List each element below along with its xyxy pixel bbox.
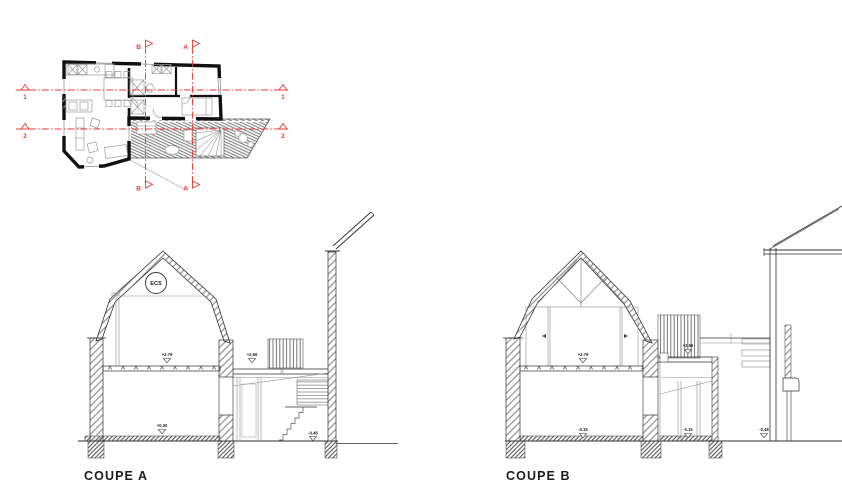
deck-stair	[196, 128, 224, 156]
door-arrow-icon	[624, 334, 628, 338]
coupe-a-party-wall	[328, 252, 336, 441]
coupe-a-title: COUPE A	[84, 469, 148, 483]
coupe-a-level-street: -0.48	[308, 431, 318, 441]
level-marker-icon	[164, 359, 171, 363]
level-text: -0.48	[759, 427, 769, 432]
level-text: +0.00	[157, 423, 168, 428]
coupe-a-left-wall	[90, 338, 103, 441]
section-1-right-flag-icon	[279, 85, 287, 91]
coupe-b-truss	[526, 258, 638, 307]
section-2-right-label: 2	[281, 133, 285, 140]
coupe-b-title: COUPE B	[506, 469, 571, 483]
coupe-b-annex	[658, 315, 718, 441]
section-a-bottom-flag-icon	[193, 181, 200, 188]
coupe-a-railing	[268, 339, 303, 368]
coupe-b-right-wall-upper	[643, 340, 658, 377]
coupe-a-drawing: ECS	[78, 212, 398, 483]
level-marker-icon	[580, 359, 587, 363]
section-1-left-label: 1	[23, 94, 27, 101]
floor-plan: B A B A 1 1 2 2	[16, 40, 288, 193]
section-b-bottom-label: B	[136, 186, 141, 193]
section-a-bottom-label: A	[183, 186, 188, 193]
coupe-b-left-wall	[506, 338, 520, 441]
coupe-b-neighbour	[700, 206, 842, 441]
level-text: +2.79	[162, 352, 173, 357]
section-b-top-label: B	[136, 44, 141, 51]
section-a-top-label: A	[183, 44, 188, 51]
door-arrow-icon	[542, 334, 546, 338]
coupe-b-railing	[658, 315, 700, 358]
coupe-a-level-annex-roof: +2.56	[247, 352, 258, 363]
section-1-left-flag-icon	[21, 85, 29, 91]
level-marker-icon	[159, 430, 166, 434]
coupe-a-level-attic: +2.79	[162, 352, 173, 363]
level-marker-icon	[761, 434, 768, 438]
coupe-b-wardrobes	[526, 307, 638, 366]
section-2-left-label: 2	[23, 133, 27, 140]
coupe-b-drawing: +2.79 +2.56 -0.15 -0.15 -0.48 COUPE B	[503, 206, 842, 483]
section-a-top-flag-icon	[193, 40, 200, 47]
level-text: +2.56	[247, 352, 258, 357]
section-b-top-flag-icon	[146, 40, 153, 47]
coupe-a-right-wall-upper	[219, 340, 233, 377]
level-marker-icon	[249, 359, 256, 363]
coupe-b-level-attic: +2.79	[578, 352, 589, 363]
architectural-drawing: B A B A 1 1 2 2	[0, 0, 842, 500]
level-marker-icon	[310, 437, 317, 441]
level-text: -0.15	[683, 427, 693, 432]
section-2-right-flag-icon	[279, 124, 287, 130]
coupe-a-level-ground: +0.00	[157, 423, 168, 434]
drawing-sheet: B A B A 1 1 2 2	[0, 0, 842, 500]
section-1-right-label: 1	[281, 94, 285, 101]
level-text: -0.15	[578, 427, 588, 432]
downspout-shoe-icon	[783, 378, 799, 391]
coupe-b-roof	[514, 251, 652, 343]
level-text: +2.79	[578, 352, 589, 357]
coupe-a-right-wall-lower	[219, 415, 233, 441]
plan-deck	[130, 119, 270, 190]
level-text: +2.56	[683, 343, 694, 348]
ecs-label: ECS	[150, 281, 162, 287]
coupe-b-level-street: -0.48	[759, 427, 769, 438]
section-b-bottom-flag-icon	[146, 181, 153, 188]
section-2-left-flag-icon	[21, 124, 29, 130]
coupe-a-stair	[279, 407, 303, 440]
coupe-b-annex-wall	[712, 357, 718, 441]
coupe-b-right-wall-lower	[643, 415, 658, 441]
level-text: -0.48	[308, 431, 318, 436]
